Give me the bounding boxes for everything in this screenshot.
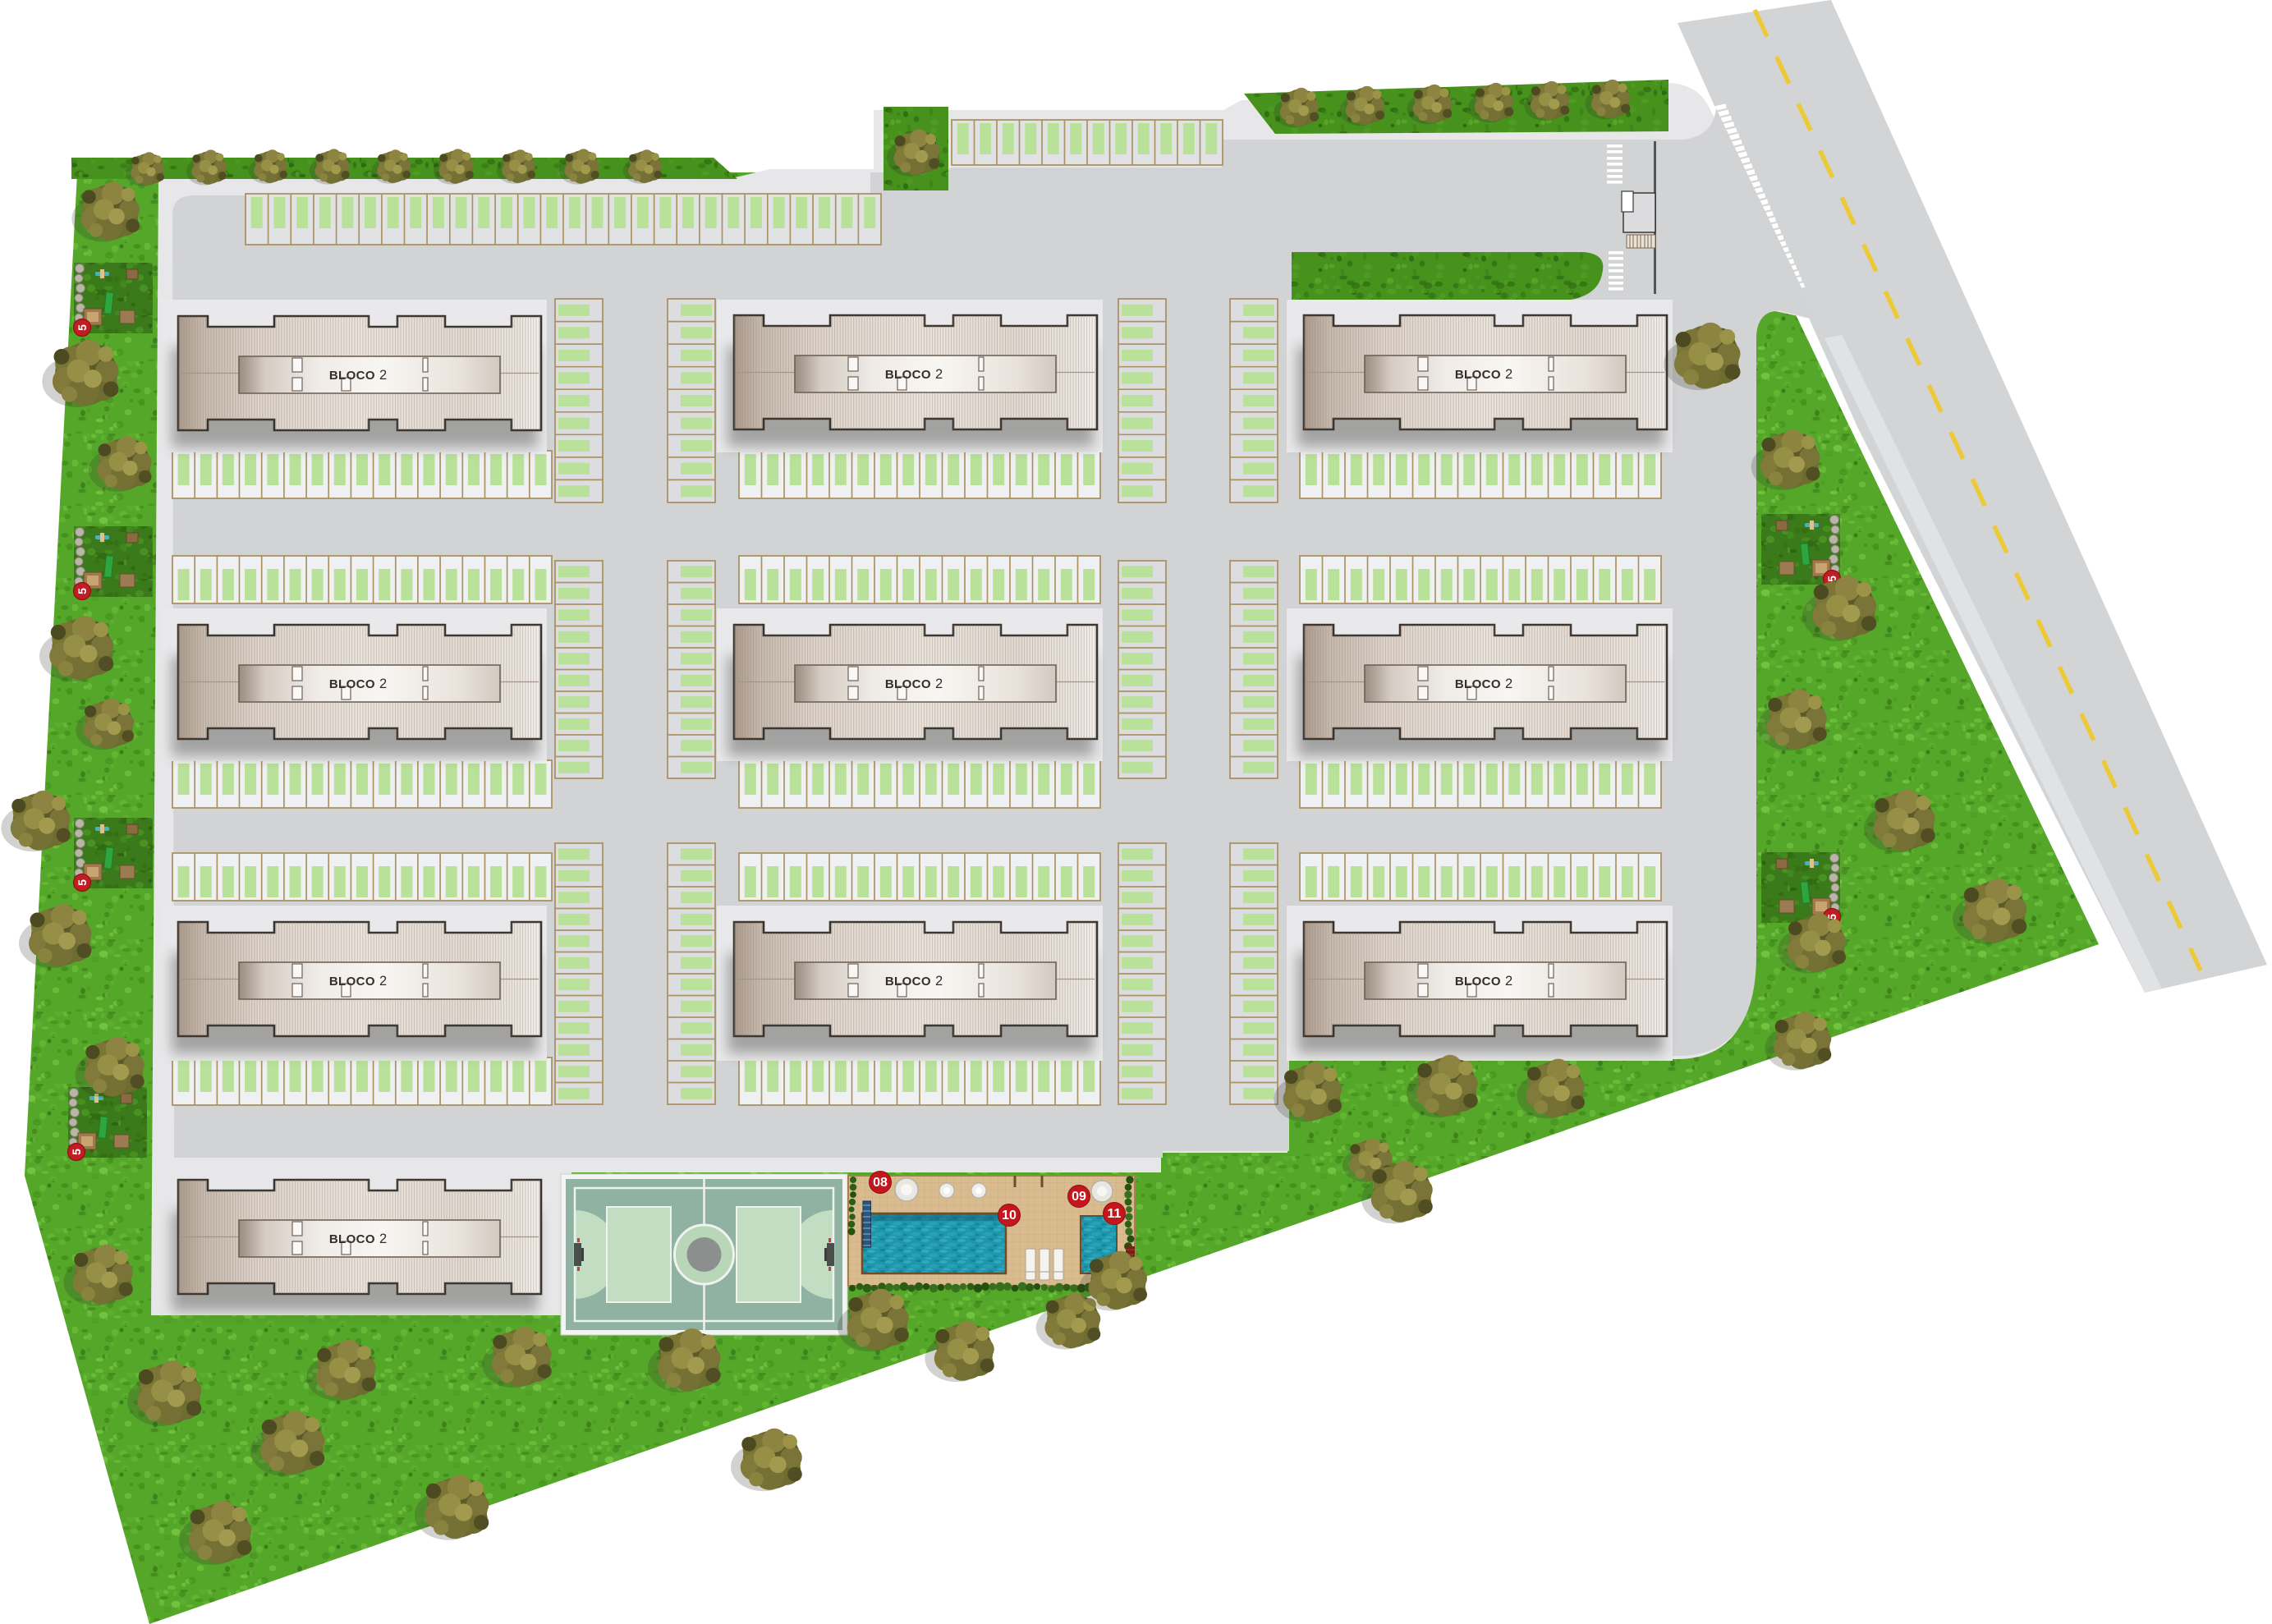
svg-text:09: 09 xyxy=(1072,1190,1086,1204)
svg-text:08: 08 xyxy=(873,1176,888,1190)
svg-text:11: 11 xyxy=(1108,1207,1122,1221)
svg-text:10: 10 xyxy=(1002,1209,1017,1223)
